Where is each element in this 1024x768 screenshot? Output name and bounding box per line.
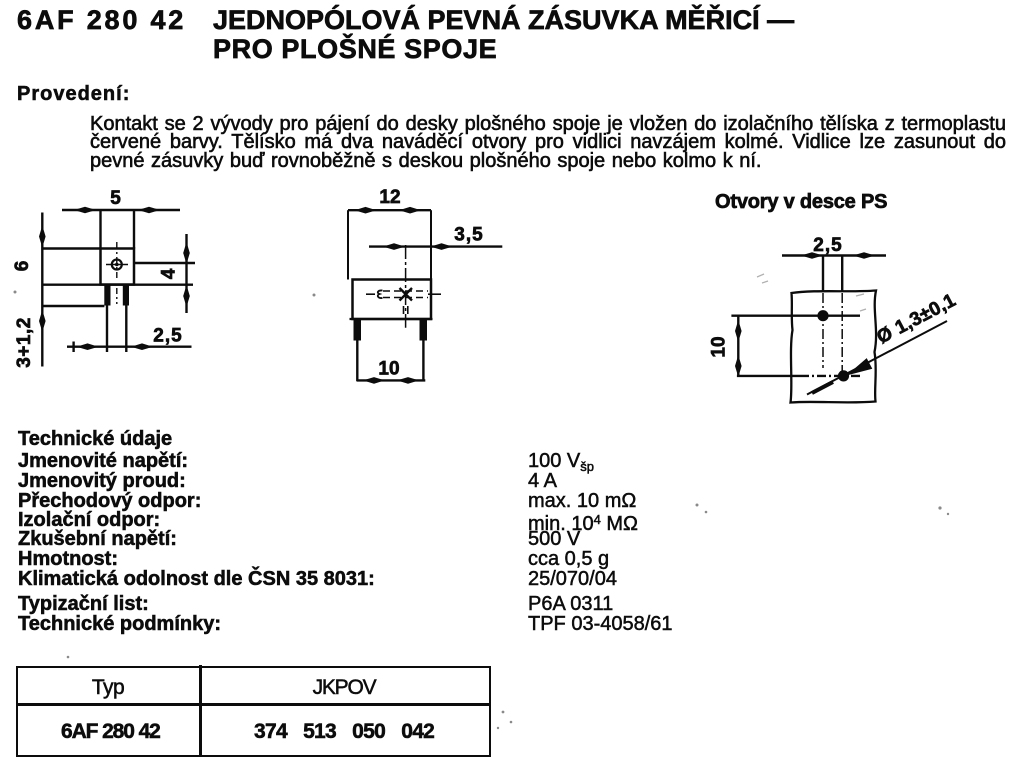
- svg-text:10: 10: [378, 359, 399, 380]
- svg-text:2,5: 2,5: [153, 326, 182, 347]
- svg-text:10: 10: [709, 336, 730, 357]
- svg-text:3+1,2: 3+1,2: [14, 317, 35, 368]
- svg-text:3,5: 3,5: [454, 225, 483, 246]
- svg-text:5: 5: [110, 188, 121, 209]
- svg-text:Otvory v desce PS: Otvory v desce PS: [715, 191, 887, 213]
- svg-text:Ø 1,3±0,1: Ø 1,3±0,1: [874, 290, 960, 349]
- svg-text:12: 12: [379, 187, 400, 208]
- svg-text:4: 4: [159, 268, 180, 279]
- svg-text:6: 6: [12, 261, 33, 272]
- svg-text:2,5: 2,5: [813, 235, 842, 256]
